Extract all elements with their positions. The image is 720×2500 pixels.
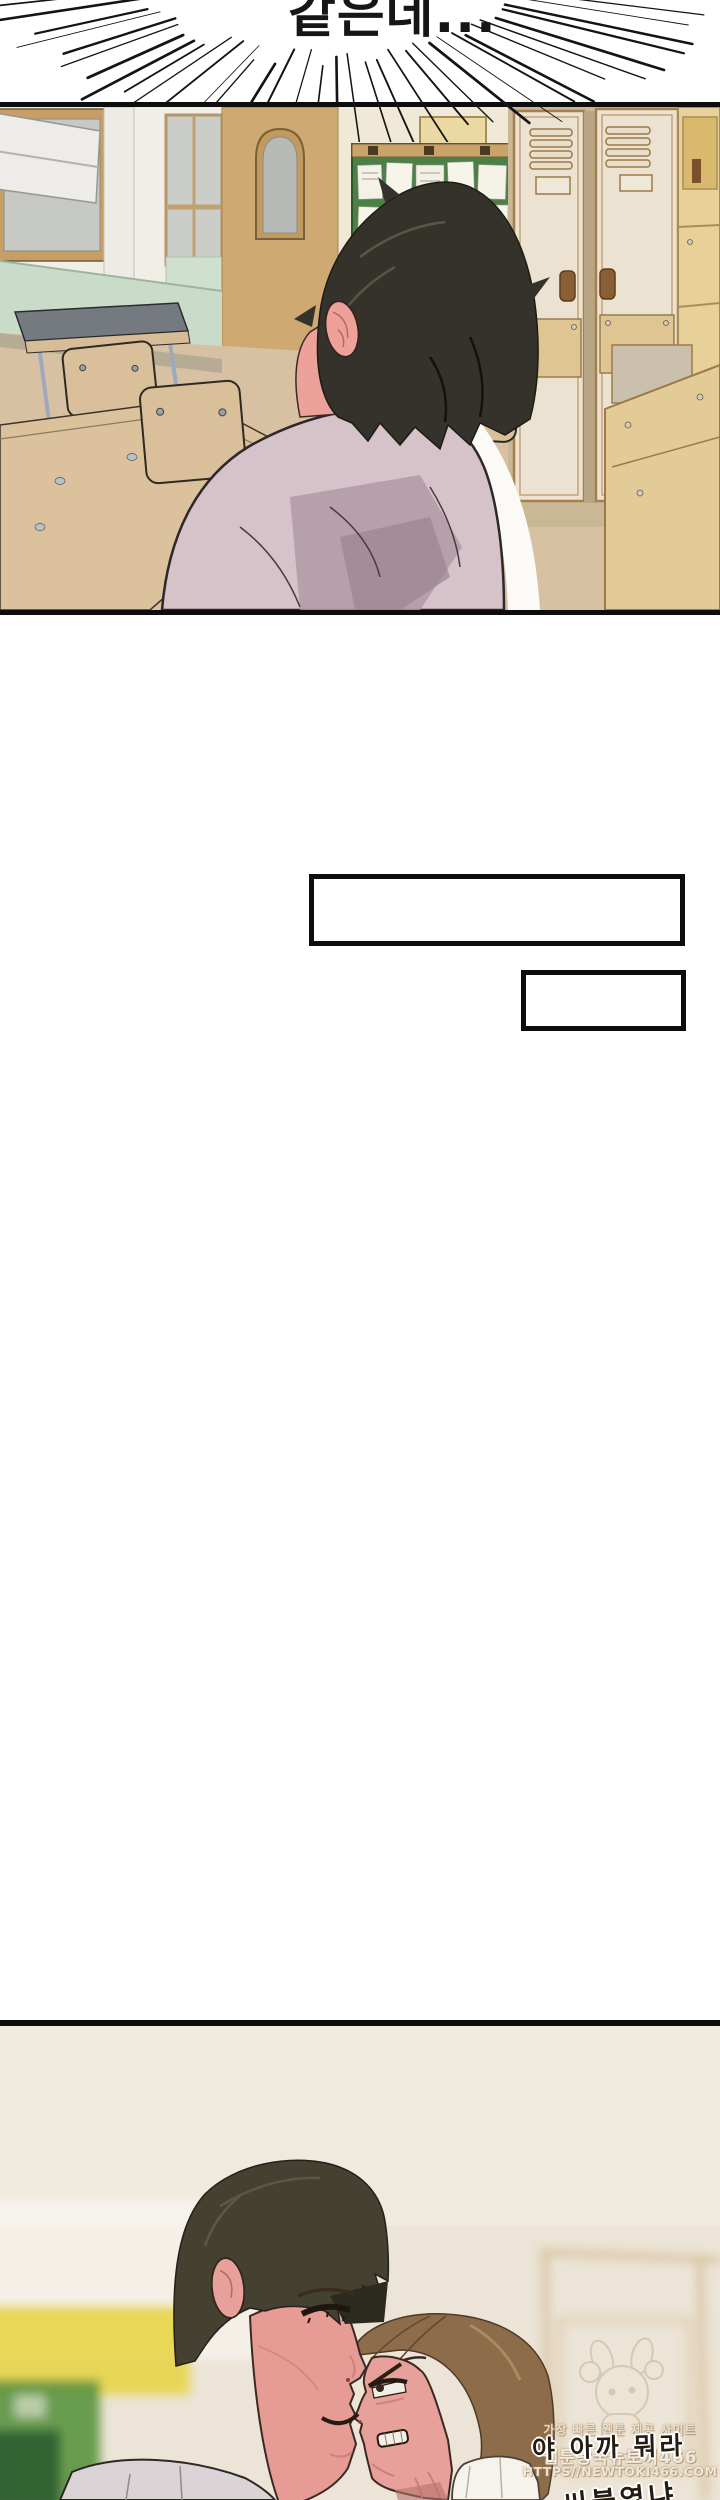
cabinet-handle [692,159,701,183]
webtoon-page: 같은데... [0,0,720,2500]
locker-name-plate [536,177,570,194]
empty-speech-box-large [309,874,685,946]
sfx-text: 같은데... [288,0,497,47]
classroom-scene [0,107,720,610]
empty-speech-box-small [521,970,686,1031]
watermark-url: HTTPS//NEWTOKI466.COM [500,2464,720,2479]
locker-handle [600,269,615,299]
dialogue-line-1: 야 아까 뭐라 [532,2426,686,2466]
locker-handle [560,271,575,301]
cabinet-bottom-right [605,345,720,610]
classroom-window [0,109,110,261]
locker-name-plate [620,175,652,191]
locker-gap [584,111,596,503]
panel-classroom [0,102,720,615]
wall-plaque [420,117,486,145]
